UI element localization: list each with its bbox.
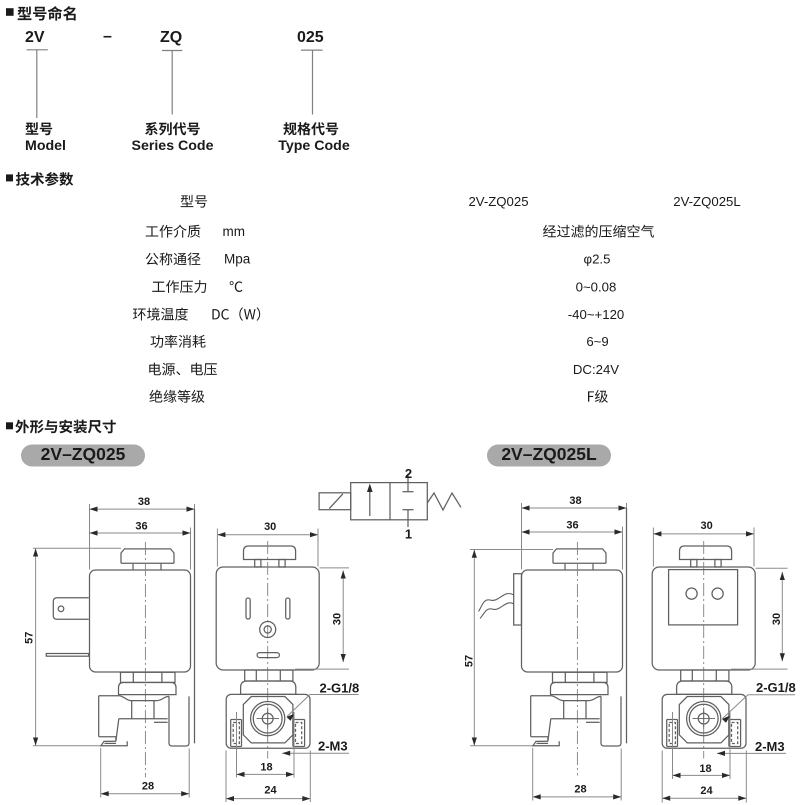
svg-text:Model: Model	[25, 138, 66, 154]
svg-text:30: 30	[264, 521, 276, 533]
svg-text:24: 24	[700, 785, 713, 797]
svg-text:2-G1/8: 2-G1/8	[320, 680, 360, 695]
svg-text:28: 28	[142, 781, 154, 793]
svg-text:6~9: 6~9	[586, 334, 608, 349]
svg-text:mm: mm	[223, 224, 246, 239]
svg-text:18: 18	[260, 761, 272, 773]
svg-text:Mpa: Mpa	[224, 252, 251, 267]
svg-text:30: 30	[771, 613, 783, 625]
svg-text:2V-ZQ025L: 2V-ZQ025L	[673, 194, 740, 209]
svg-text:Series Code: Series Code	[131, 138, 213, 154]
svg-text:1: 1	[405, 527, 412, 542]
svg-text:2-M3: 2-M3	[318, 738, 348, 753]
svg-text:2V–ZQ025L: 2V–ZQ025L	[501, 444, 597, 464]
svg-text:36: 36	[135, 520, 147, 532]
svg-text:2: 2	[405, 466, 412, 481]
svg-text:2-M3: 2-M3	[755, 739, 785, 754]
svg-text:57: 57	[463, 655, 475, 667]
svg-text:38: 38	[138, 496, 150, 508]
svg-text:–: –	[103, 28, 112, 45]
svg-text:28: 28	[574, 783, 586, 795]
svg-text:0~0.08: 0~0.08	[576, 279, 617, 294]
svg-text:φ2.5: φ2.5	[584, 252, 611, 267]
svg-text:Type Code: Type Code	[278, 138, 350, 154]
svg-text:2-G1/8: 2-G1/8	[756, 680, 796, 695]
svg-text:30: 30	[332, 613, 344, 625]
svg-text:38: 38	[569, 495, 581, 507]
svg-text:36: 36	[566, 519, 578, 531]
svg-text:30: 30	[700, 520, 712, 532]
svg-text:ZQ: ZQ	[160, 29, 182, 46]
svg-text:025: 025	[297, 29, 324, 46]
svg-text:-40~+120: -40~+120	[568, 307, 624, 322]
svg-text:DC:24V: DC:24V	[573, 362, 619, 377]
svg-text:57: 57	[24, 632, 36, 644]
svg-text:2V–ZQ025: 2V–ZQ025	[41, 444, 126, 464]
svg-text:18: 18	[699, 763, 711, 775]
svg-text:24: 24	[264, 785, 277, 797]
svg-text:2V: 2V	[25, 29, 45, 46]
svg-text:2V-ZQ025: 2V-ZQ025	[468, 194, 528, 209]
